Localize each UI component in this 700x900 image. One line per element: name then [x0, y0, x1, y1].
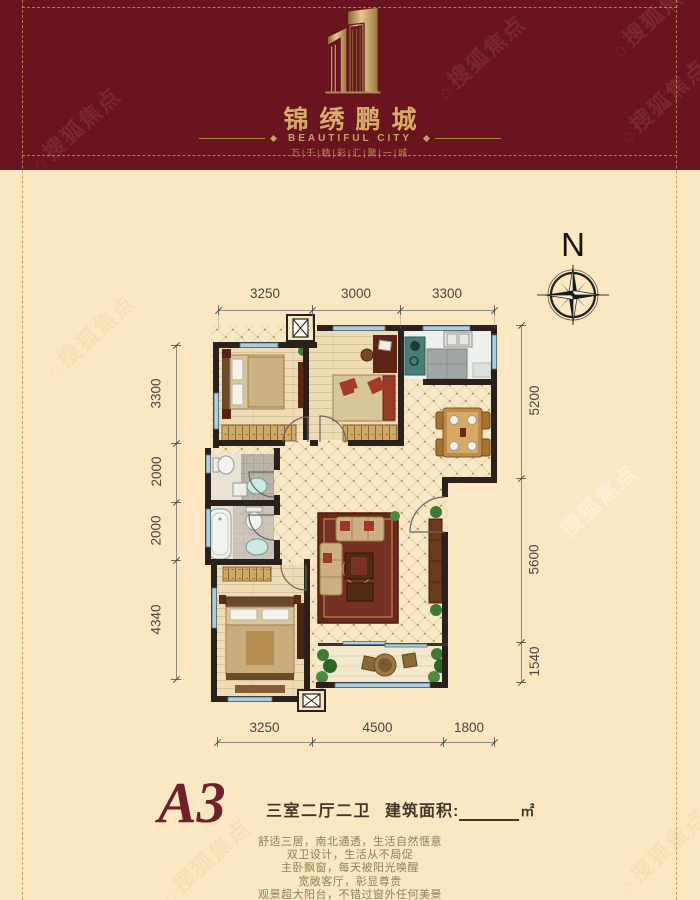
- plant-icon: [430, 604, 442, 616]
- brand-building-icon: [290, 6, 410, 98]
- bed-headboard: [222, 353, 230, 411]
- diamond-icon: [270, 135, 277, 142]
- dim-label: 2000: [149, 442, 164, 501]
- dimension-top: 3250 3000 3300: [218, 284, 495, 324]
- feature-line: 主卧飘窗，每天被阳光唤醒: [0, 862, 700, 875]
- frame-dash-top: [22, 7, 677, 8]
- tv-cabinet: [297, 603, 304, 659]
- subtitle-rule-right: [435, 138, 501, 139]
- header-band: 锦绣鹏城 BEAUTIFUL CITY 万|千|精|彩|汇|聚|一|城: [0, 0, 700, 170]
- toilet: [246, 507, 262, 512]
- wardrobe: [343, 425, 397, 441]
- compass: N: [535, 228, 611, 332]
- compass-rose-icon: [535, 261, 611, 329]
- desk-chair: [361, 349, 373, 361]
- dimension-bottom: 3250 4500 1800: [217, 716, 495, 748]
- dim-label: 5200: [527, 324, 542, 477]
- dim-label: 1540: [527, 641, 542, 682]
- watermark: ⌂搜狐焦点: [540, 456, 645, 555]
- side-table: [347, 583, 373, 601]
- brand-subtitle: BEAUTIFUL CITY: [288, 133, 412, 144]
- nightstand: [294, 595, 301, 604]
- brand-title: 锦绣鹏城: [0, 100, 700, 136]
- dim-label: 2000: [149, 502, 164, 560]
- elevator-shaft-icon: [298, 690, 325, 711]
- sink: [246, 539, 268, 555]
- bed-bench: [235, 685, 285, 693]
- frame-dash-header-bottom: [22, 155, 677, 156]
- washer: [233, 483, 247, 496]
- sofa-side: [320, 543, 342, 595]
- dim-label: 4340: [149, 560, 164, 680]
- dim-label: 1800: [443, 720, 495, 735]
- dimension-left: 3300 2000 2000 4340: [148, 345, 178, 680]
- subtitle-rule-left: [199, 138, 265, 139]
- area-label: 建筑面积:: [385, 797, 459, 821]
- dim-label: 3300: [149, 345, 164, 443]
- plant-icon: [390, 511, 400, 521]
- sliding-door: [385, 644, 427, 647]
- plant-icon: [428, 671, 440, 683]
- feature-list: 舒适三居，南北通透，生活自然惬意 双卫设计，生活从不局促 主卧飘窗，每天被阳光唤…: [0, 836, 700, 900]
- nightstand: [222, 409, 231, 419]
- brand-subtitle-row: BEAUTIFUL CITY: [0, 133, 700, 144]
- frame-dash-left: [22, 0, 23, 900]
- area-unit: ㎡: [520, 801, 534, 821]
- dim-label: 3250: [218, 286, 312, 301]
- dresser: [223, 567, 271, 581]
- frame-dash-right: [676, 0, 677, 900]
- nightstand: [222, 349, 231, 358]
- kitchen-mat: [473, 363, 491, 377]
- watermark-house-icon: ⌂: [44, 359, 67, 382]
- feature-line: 双卫设计，生活从不局促: [0, 849, 700, 862]
- bed-headboard: [226, 597, 294, 607]
- diamond-icon: [423, 135, 430, 142]
- feature-line: 舒适三居，南北通透，生活自然惬意: [0, 836, 700, 849]
- plant-icon: [430, 506, 442, 518]
- dim-label: 3000: [312, 286, 400, 301]
- sliding-door: [343, 642, 385, 645]
- feature-line: 宽敞客厅，彰显尊贵: [0, 876, 700, 889]
- floor-plan: [193, 313, 505, 717]
- plant-icon: [317, 649, 329, 661]
- brand-tagline: 万|千|精|彩|汇|聚|一|城: [0, 146, 700, 159]
- dim-label: 3300: [400, 286, 494, 301]
- dim-label: 3250: [217, 720, 312, 735]
- floorplan-flyer: 锦绣鹏城 BEAUTIFUL CITY 万|千|精|彩|汇|聚|一|城 ⌂搜狐焦…: [0, 0, 700, 900]
- nightstand: [219, 595, 226, 604]
- area-blank-line: [459, 806, 519, 821]
- dining-area: [436, 408, 490, 457]
- dim-label: 4500: [312, 720, 443, 735]
- dimension-right: 5200 5600 1540: [521, 325, 555, 683]
- watermark: ⌂搜狐焦点: [38, 286, 143, 385]
- plant-icon: [431, 648, 443, 660]
- stool: [402, 653, 417, 668]
- feature-line: 观景超大阳台，不错过窗外任何美景: [0, 889, 700, 900]
- plant-icon: [323, 659, 337, 673]
- north-label: N: [535, 228, 611, 261]
- dim-label: 5600: [527, 478, 542, 642]
- unit-summary-row: 三室二厅二卫 建筑面积: ㎡: [266, 797, 534, 821]
- unit-layout: 三室二厅二卫: [266, 797, 371, 821]
- plant-icon: [316, 671, 328, 683]
- bed-footboard: [226, 673, 294, 680]
- unit-name: A3: [158, 774, 226, 832]
